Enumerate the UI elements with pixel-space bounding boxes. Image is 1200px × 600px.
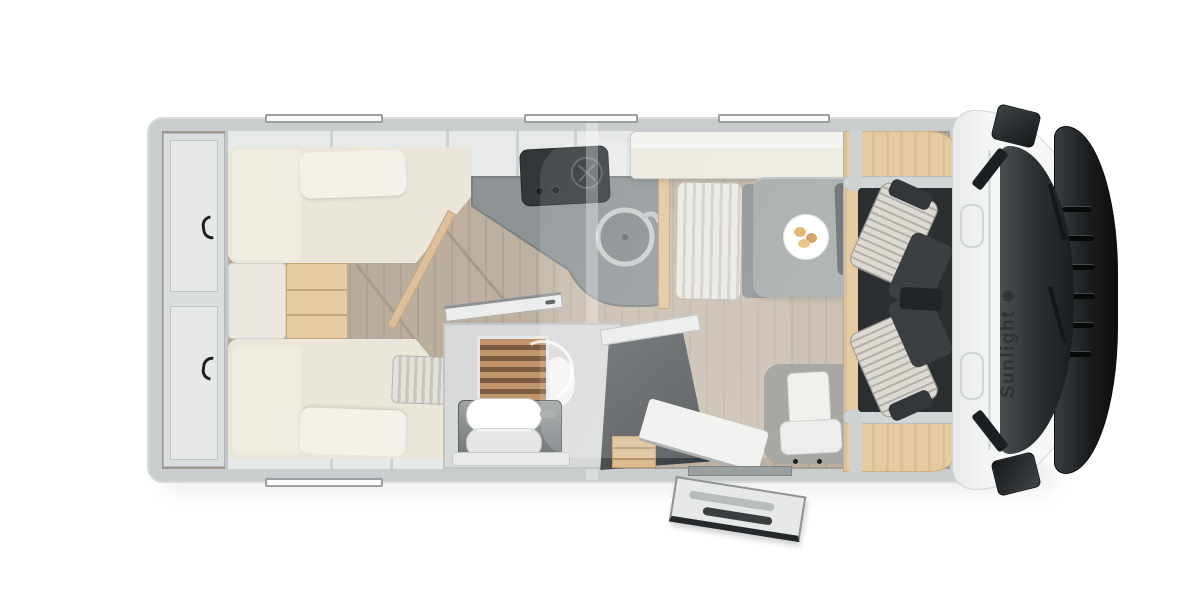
step-edge [287,314,347,316]
door-hinge [817,459,822,464]
bed-headboard [232,345,302,455]
rear-storage-shelf [170,306,218,460]
door-step-bar [689,490,775,511]
door-hinge [793,459,798,464]
door-threshold [688,466,792,476]
cap-seam [988,150,991,450]
entry-step-base [779,418,843,455]
cap-rib [960,352,984,400]
wall-window [265,114,383,123]
center-console [899,287,942,311]
cab-pillar [849,410,862,472]
washbasin [466,398,542,432]
rear-storage-shelf [170,140,218,292]
sun-icon: ❋ [999,288,1019,303]
entry-step [787,371,832,425]
cap-rib [960,204,984,248]
wall-window [265,478,383,487]
nightstand [228,263,286,339]
folded-blanket [391,355,449,405]
pillow [299,149,407,199]
motorhome-floorplan: Sunlight ❋ [0,0,1200,600]
step-edge [287,289,347,291]
bathroom-ledge [452,452,570,466]
bed-headboard [232,149,302,261]
bed-steps [286,263,348,339]
drawer-line [613,458,655,460]
brand-logo-text: Sunlight [998,310,1020,398]
grille-slat [1062,206,1092,212]
wall-window [718,114,830,123]
brand-logo: Sunlight ❋ [998,228,1020,398]
wall-window [524,114,638,123]
pillow [299,407,407,457]
cab-pillar [849,131,862,191]
